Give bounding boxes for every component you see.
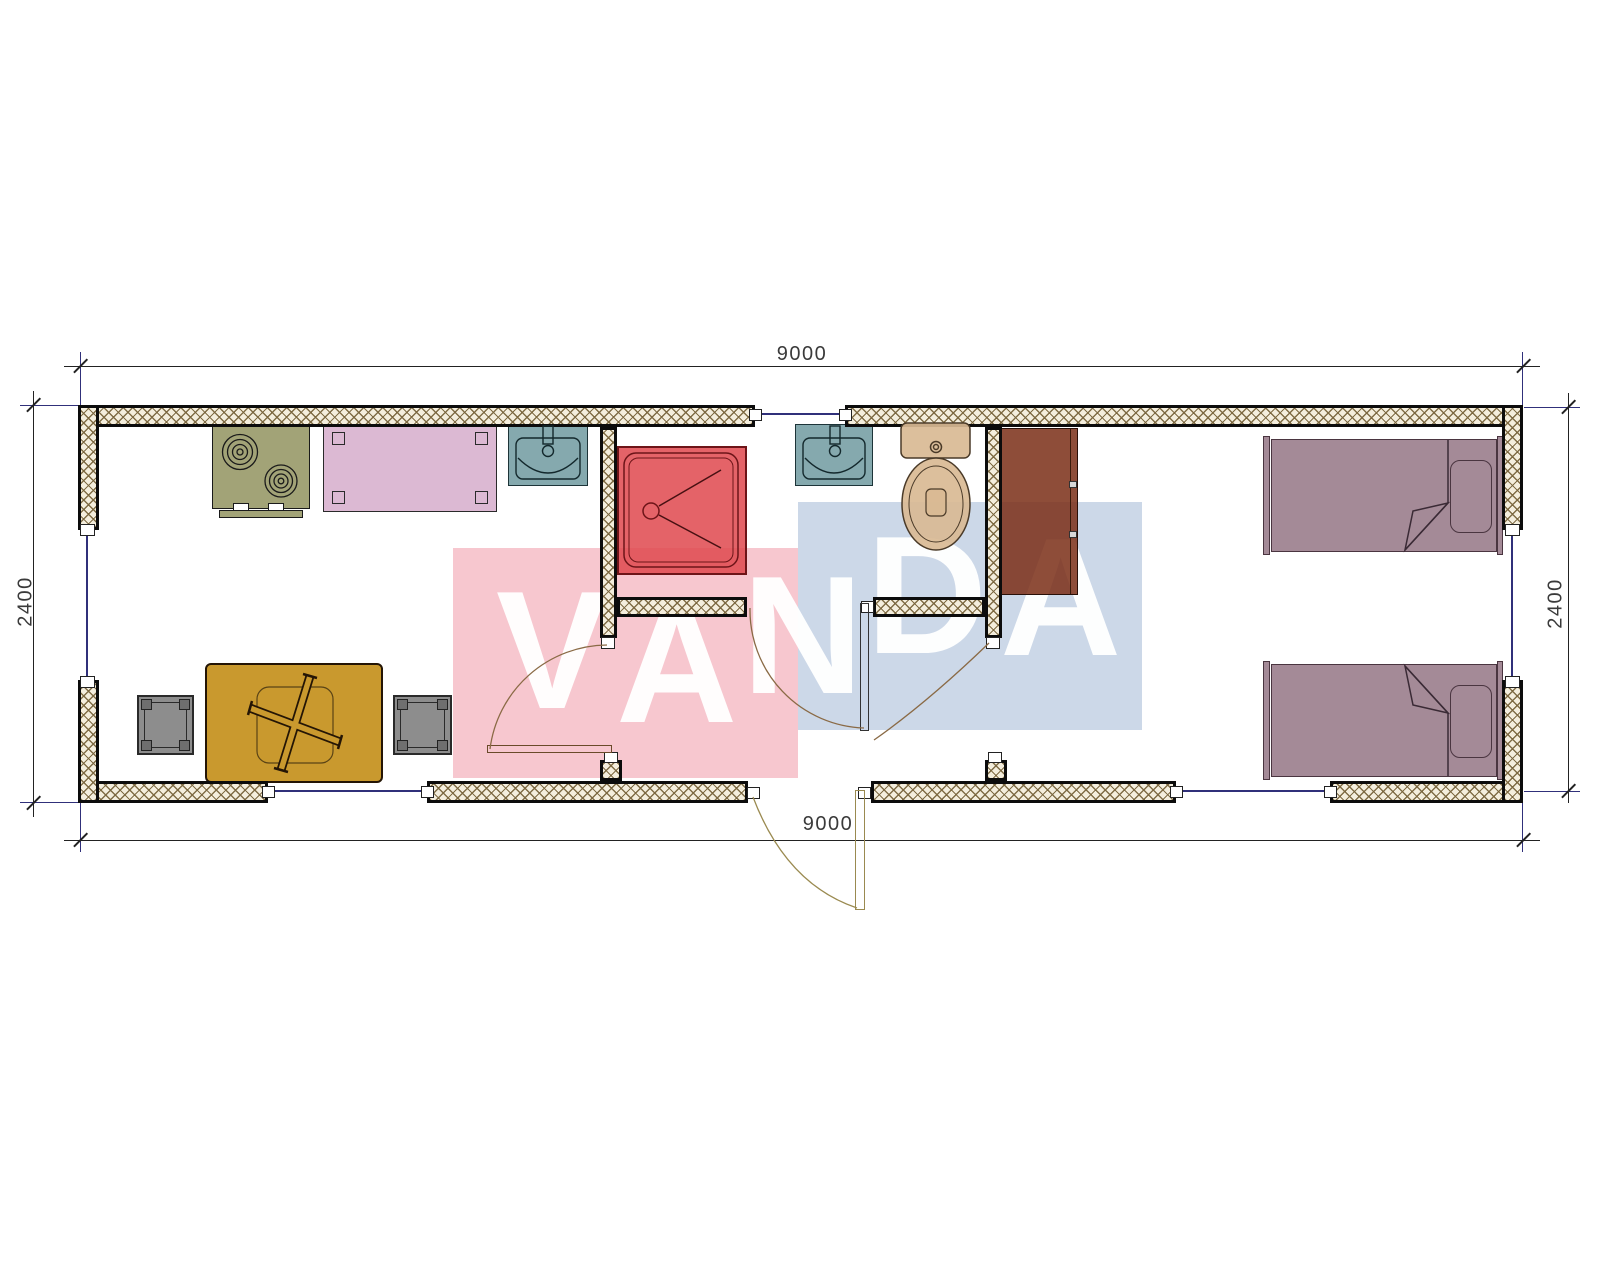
wall-bathroom-right: [985, 427, 1002, 638]
watermark-letter-d: D: [866, 511, 987, 679]
wall-bathroom-bottom-right: [873, 597, 985, 617]
watermark-letter-v: V: [496, 566, 608, 734]
ext-line: [80, 352, 81, 405]
jamb-cap: [749, 409, 762, 421]
bathroom-door-leaf-hall-side: [860, 603, 869, 731]
dim-label-bottom: 9000: [768, 813, 888, 836]
entrance-door-leaf: [855, 790, 865, 910]
wall-right-top-segment: [1502, 405, 1523, 530]
table-corner: [475, 432, 488, 445]
wall-bottom-segment-2: [427, 781, 748, 803]
jamb-cap: [604, 752, 618, 763]
bathroom-sink: [795, 424, 873, 486]
stool-corner: [179, 699, 190, 710]
wall-stub-kitchen-door: [600, 760, 622, 781]
bed-1-headboard: [1263, 436, 1270, 555]
wall-bottom-segment-1: [78, 781, 268, 803]
stool-corner: [437, 740, 448, 751]
dim-line-right: [1568, 393, 1569, 803]
stool-corner: [397, 699, 408, 710]
wall-top-right-segment: [845, 405, 1523, 427]
wall-bottom-segment-3: [871, 781, 1176, 803]
wall-left-top-segment: [78, 405, 99, 530]
shower-tray: [617, 446, 747, 575]
stool-corner: [397, 740, 408, 751]
jamb-cap: [80, 676, 95, 688]
bed-2-pillow: [1450, 685, 1492, 758]
ext-line: [20, 405, 78, 406]
floor-plan-canvas: V A N D A: [0, 0, 1600, 1280]
table-corner: [332, 432, 345, 445]
kitchen-table: [323, 424, 497, 512]
bathroom-door-leaf-kitchen-side: [487, 745, 612, 753]
stove-leg: [268, 503, 284, 511]
jamb-cap: [986, 637, 1000, 649]
dim-label-left: 2400: [15, 542, 38, 662]
jamb-cap: [747, 787, 760, 799]
stool-corner: [437, 699, 448, 710]
kitchen-sink: [508, 424, 588, 486]
stove-shelf: [219, 510, 303, 518]
ext-line: [1524, 407, 1580, 408]
wall-right-bottom-segment: [1502, 680, 1523, 803]
window-left: [86, 530, 88, 680]
stove-leg: [233, 503, 249, 511]
dim-line-bottom: [64, 840, 1540, 841]
jamb-cap: [1505, 524, 1520, 536]
window-bottom-left: [268, 790, 427, 792]
table-corner: [475, 491, 488, 504]
cabinet-handle: [1069, 481, 1077, 488]
window-bottom-right: [1176, 790, 1330, 792]
window-top: [755, 413, 845, 415]
cabinet-edge: [1070, 429, 1072, 594]
wall-left-bottom-segment: [78, 680, 99, 803]
ext-line: [20, 802, 78, 803]
stool-left: [137, 695, 194, 755]
wardrobe-cabinet: [1001, 428, 1078, 595]
jamb-cap: [1505, 676, 1520, 688]
cabinet-handle: [1069, 531, 1077, 538]
wall-stub-bedroom-door: [985, 760, 1007, 781]
dim-label-top: 9000: [742, 343, 862, 366]
window-right: [1511, 530, 1513, 680]
dining-table: [205, 663, 383, 783]
jamb-cap: [988, 752, 1002, 763]
jamb-cap: [262, 786, 275, 798]
jamb-cap: [421, 786, 434, 798]
jamb-cap: [601, 637, 615, 649]
stool-right: [393, 695, 452, 755]
stool-corner: [179, 740, 190, 751]
bed-2-headboard: [1263, 661, 1270, 780]
stove: [212, 425, 310, 509]
jamb-cap: [1170, 786, 1183, 798]
table-corner: [332, 491, 345, 504]
ext-line: [1524, 791, 1580, 792]
wall-top-left-segment: [78, 405, 755, 427]
dim-label-right: 2400: [1545, 544, 1568, 664]
dim-line-top: [64, 366, 1540, 367]
wall-bathroom-bottom-left: [617, 597, 747, 617]
watermark-letter-n: N: [742, 551, 863, 719]
ext-line: [80, 803, 81, 852]
jamb-cap: [80, 524, 95, 536]
stool-corner: [141, 740, 152, 751]
ext-line: [1522, 352, 1523, 405]
stool-corner: [141, 699, 152, 710]
jamb-cap: [1324, 786, 1337, 798]
wall-bottom-segment-4: [1330, 781, 1523, 803]
bed-1-pillow: [1450, 460, 1492, 533]
wall-bathroom-left: [600, 427, 617, 638]
jamb-cap: [839, 409, 852, 421]
ext-line: [1522, 803, 1523, 852]
